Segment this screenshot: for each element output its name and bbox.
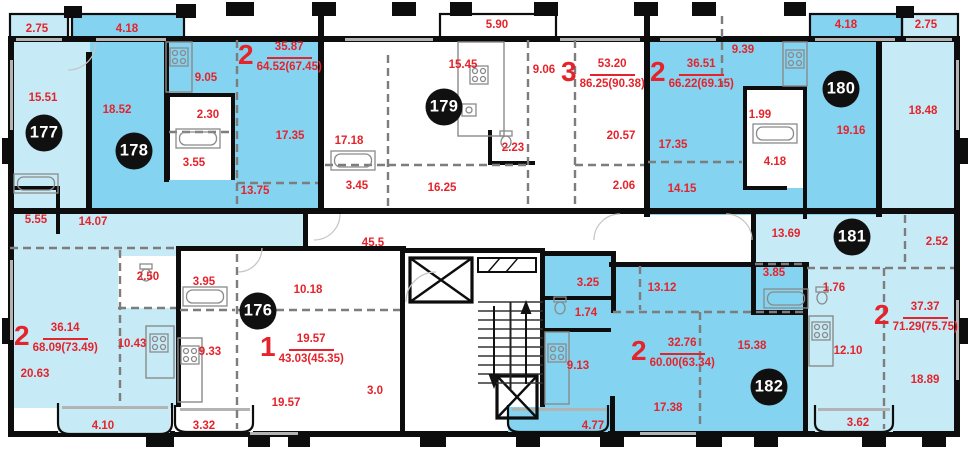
apartment-total-area: 60.00(63.34) [650, 355, 715, 371]
dimension-label: 4.10 [92, 420, 114, 432]
dimension-label: 2.30 [197, 109, 219, 121]
dimension-label: 4.18 [835, 19, 857, 31]
dimension-label: 1.74 [575, 307, 597, 319]
dimension-label: 17.38 [654, 402, 683, 414]
dimension-label: 16.25 [428, 182, 457, 194]
apartment-total-area: 71.29(75.75) [893, 319, 958, 335]
dimension-label: 13.69 [772, 228, 801, 240]
dimension-label: 12.10 [834, 345, 863, 357]
apartment-area-fraction: 36.1468.09(73.49) [33, 321, 98, 356]
apartment-badge-180: 180 [823, 71, 860, 108]
dimension-label: 4.77 [582, 420, 604, 432]
dimension-label: 2.23 [502, 142, 524, 154]
dimension-label: 17.35 [276, 130, 305, 142]
apartment-living-area: 36.14 [43, 321, 88, 340]
apartment-area-fraction: 32.7660.00(63.34) [650, 336, 715, 371]
dimension-label: 14.15 [668, 183, 697, 195]
apartment-total-area: 64.52(67.45) [257, 59, 322, 75]
apartment-header-177: 236.1468.09(73.49) [14, 321, 98, 356]
apartment-area-fraction: 36.5166.22(69.15) [669, 57, 734, 92]
apartment-area-fraction: 37.3771.29(75.75) [893, 300, 958, 335]
dimension-label: 2.06 [613, 180, 635, 192]
apartment-header-180: 236.5166.22(69.15) [650, 57, 734, 92]
apartment-living-area: 53.20 [590, 57, 635, 76]
apartment-total-area: 43.03(45.35) [279, 351, 344, 367]
apartment-badge-178: 178 [116, 133, 153, 170]
apartment-area-fraction: 53.2086.25(90.38) [580, 57, 645, 92]
floor-plan: 2.754.185.904.182.759.0515.459.069.3915.… [0, 0, 970, 451]
apartment-area-fraction: 35.8764.52(67.45) [257, 40, 322, 75]
apartment-rooms-count: 2 [14, 322, 30, 350]
dimension-label: 10.18 [294, 284, 323, 296]
dimension-label: 3.45 [346, 180, 368, 192]
dimension-label: 45.5 [362, 237, 384, 249]
apartment-badge-181: 181 [834, 219, 871, 256]
dimension-label: 20.57 [607, 130, 636, 142]
apartment-header-182: 232.7660.00(63.34) [631, 336, 715, 371]
apartment-rooms-count: 3 [561, 58, 577, 86]
dimension-label: 19.16 [837, 125, 866, 137]
apartment-badge-177: 177 [26, 115, 63, 152]
dimension-label: 10.43 [118, 338, 147, 350]
dimension-label: 15.51 [29, 92, 58, 104]
dimension-label: 15.38 [738, 340, 767, 352]
apartment-rooms-count: 2 [631, 337, 647, 365]
apartment-total-area: 66.22(69.15) [669, 76, 734, 92]
apartment-badge-179: 179 [426, 89, 463, 126]
dimension-label: 3.32 [193, 420, 215, 432]
dimension-label: 18.48 [909, 105, 938, 117]
apartment-rooms-count: 2 [650, 58, 666, 86]
dimension-label: 2.52 [926, 236, 948, 248]
apartment-living-area: 36.51 [679, 57, 724, 76]
dimension-label: 3.25 [577, 277, 599, 289]
apartment-header-178: 235.8764.52(67.45) [238, 40, 322, 75]
dimension-label: 9.33 [199, 346, 221, 358]
dimension-label: 15.45 [449, 59, 478, 71]
apartment-header-179: 353.2086.25(90.38) [561, 57, 645, 92]
dimension-label: 18.89 [911, 374, 940, 386]
apartment-header-176: 119.5743.03(45.35) [260, 332, 344, 367]
dimension-label: 1.76 [823, 282, 845, 294]
dimension-label: 3.85 [763, 267, 785, 279]
apartment-header-181: 237.3771.29(75.75) [874, 300, 958, 335]
dimension-label: 2.75 [915, 19, 937, 31]
apartment-total-area: 68.09(73.49) [33, 340, 98, 356]
dimension-label: 4.18 [764, 156, 786, 168]
apartment-rooms-count: 1 [260, 333, 276, 361]
dimension-label: 9.05 [195, 72, 217, 84]
dimension-label: 1.99 [749, 109, 771, 121]
apartment-rooms-count: 2 [238, 41, 254, 69]
apartment-living-area: 35.87 [267, 40, 312, 59]
apartment-living-area: 37.37 [903, 300, 948, 319]
dimension-label: 4.18 [116, 23, 138, 35]
labels-overlay: 2.754.185.904.182.759.0515.459.069.3915.… [0, 0, 970, 451]
dimension-label: 9.13 [567, 360, 589, 372]
dimension-label: 5.55 [25, 214, 47, 226]
apartment-badge-176: 176 [240, 293, 277, 330]
apartment-total-area: 86.25(90.38) [580, 76, 645, 92]
dimension-label: 13.75 [241, 185, 270, 197]
dimension-label: 2.50 [137, 271, 159, 283]
dimension-label: 3.95 [193, 276, 215, 288]
apartment-living-area: 19.57 [289, 332, 334, 351]
dimension-label: 9.39 [732, 44, 754, 56]
dimension-label: 14.07 [79, 216, 108, 228]
apartment-living-area: 32.76 [660, 336, 705, 355]
dimension-label: 5.90 [486, 19, 508, 31]
dimension-label: 18.52 [103, 104, 132, 116]
apartment-area-fraction: 19.5743.03(45.35) [279, 332, 344, 367]
apartment-rooms-count: 2 [874, 301, 890, 329]
dimension-label: 19.57 [272, 397, 301, 409]
dimension-label: 9.06 [533, 64, 555, 76]
dimension-label: 13.12 [648, 282, 677, 294]
dimension-label: 3.62 [847, 417, 869, 429]
dimension-label: 17.35 [659, 139, 688, 151]
dimension-label: 2.75 [26, 23, 48, 35]
dimension-label: 20.63 [21, 368, 50, 380]
dimension-label: 3.55 [183, 157, 205, 169]
dimension-label: 3.0 [367, 385, 383, 397]
dimension-label: 17.18 [335, 135, 364, 147]
apartment-badge-182: 182 [751, 369, 788, 406]
